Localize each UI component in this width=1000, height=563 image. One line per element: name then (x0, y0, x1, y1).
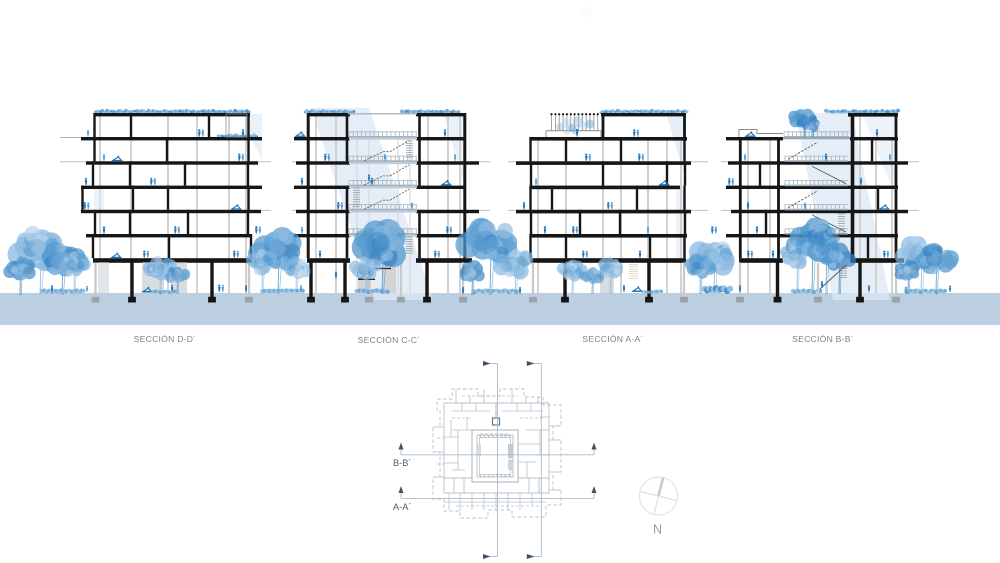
svg-text:SECCIÓN B-B´: SECCIÓN B-B´ (792, 334, 854, 344)
svg-text:B-B´: B-B´ (393, 458, 411, 468)
svg-text:SECCIÓN D-D´: SECCIÓN D-D´ (134, 334, 197, 344)
svg-text:N: N (653, 523, 662, 537)
svg-text:SECCIÓN A-A´: SECCIÓN A-A´ (582, 334, 643, 344)
svg-text:SECCIÓN C-C´: SECCIÓN C-C´ (358, 335, 421, 345)
svg-text:A-A´: A-A´ (393, 502, 411, 512)
